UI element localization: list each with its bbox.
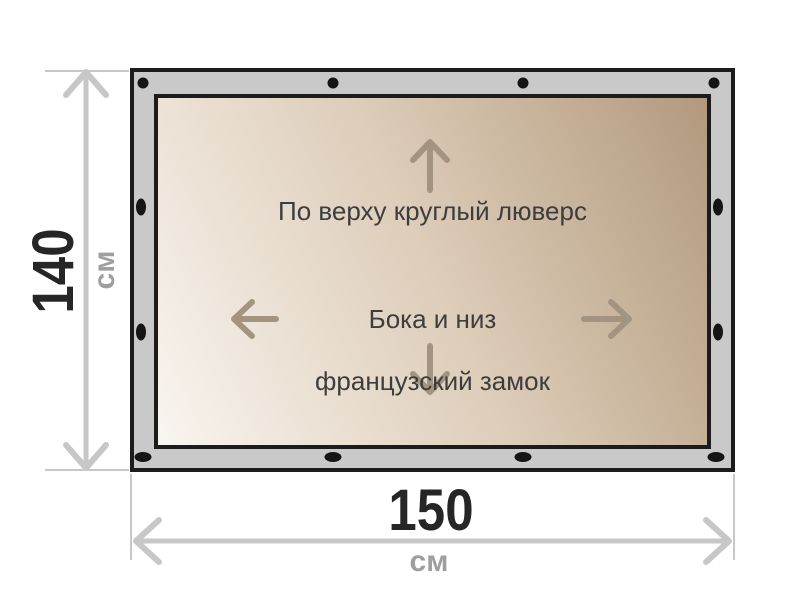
height-arrowhead-down-icon (66, 445, 106, 468)
product-dimension-diagram: По верху круглый люверс Бока и низ франц… (0, 0, 800, 600)
round-grommet-icon (518, 78, 529, 89)
round-grommet-icon (709, 78, 720, 89)
width-value-label: 150 (388, 482, 473, 540)
width-arrowhead-left-icon (136, 520, 159, 562)
lock-grommet-icon (135, 452, 152, 462)
height-unit-label: см (90, 251, 120, 290)
width-arrowhead-right-icon (706, 520, 729, 562)
sides-bottom-note-line1: Бока и низ (154, 304, 711, 335)
lock-grommet-icon (713, 199, 723, 216)
round-grommet-icon (328, 78, 339, 89)
lock-grommet-icon (325, 452, 342, 462)
height-value-label: 140 (25, 228, 83, 313)
lock-grommet-icon (136, 324, 146, 341)
lock-grommet-icon (515, 452, 532, 462)
sides-bottom-note: Бока и низ французский замок (154, 273, 711, 428)
width-unit-label: см (410, 547, 449, 577)
top-edge-note: По верху круглый люверс (154, 196, 711, 227)
lock-grommet-icon (713, 324, 723, 341)
lock-grommet-icon (708, 452, 725, 462)
lock-grommet-icon (136, 199, 146, 216)
sides-bottom-note-line2: французский замок (154, 366, 711, 397)
round-grommet-icon (138, 78, 149, 89)
height-arrowhead-up-icon (66, 72, 106, 95)
